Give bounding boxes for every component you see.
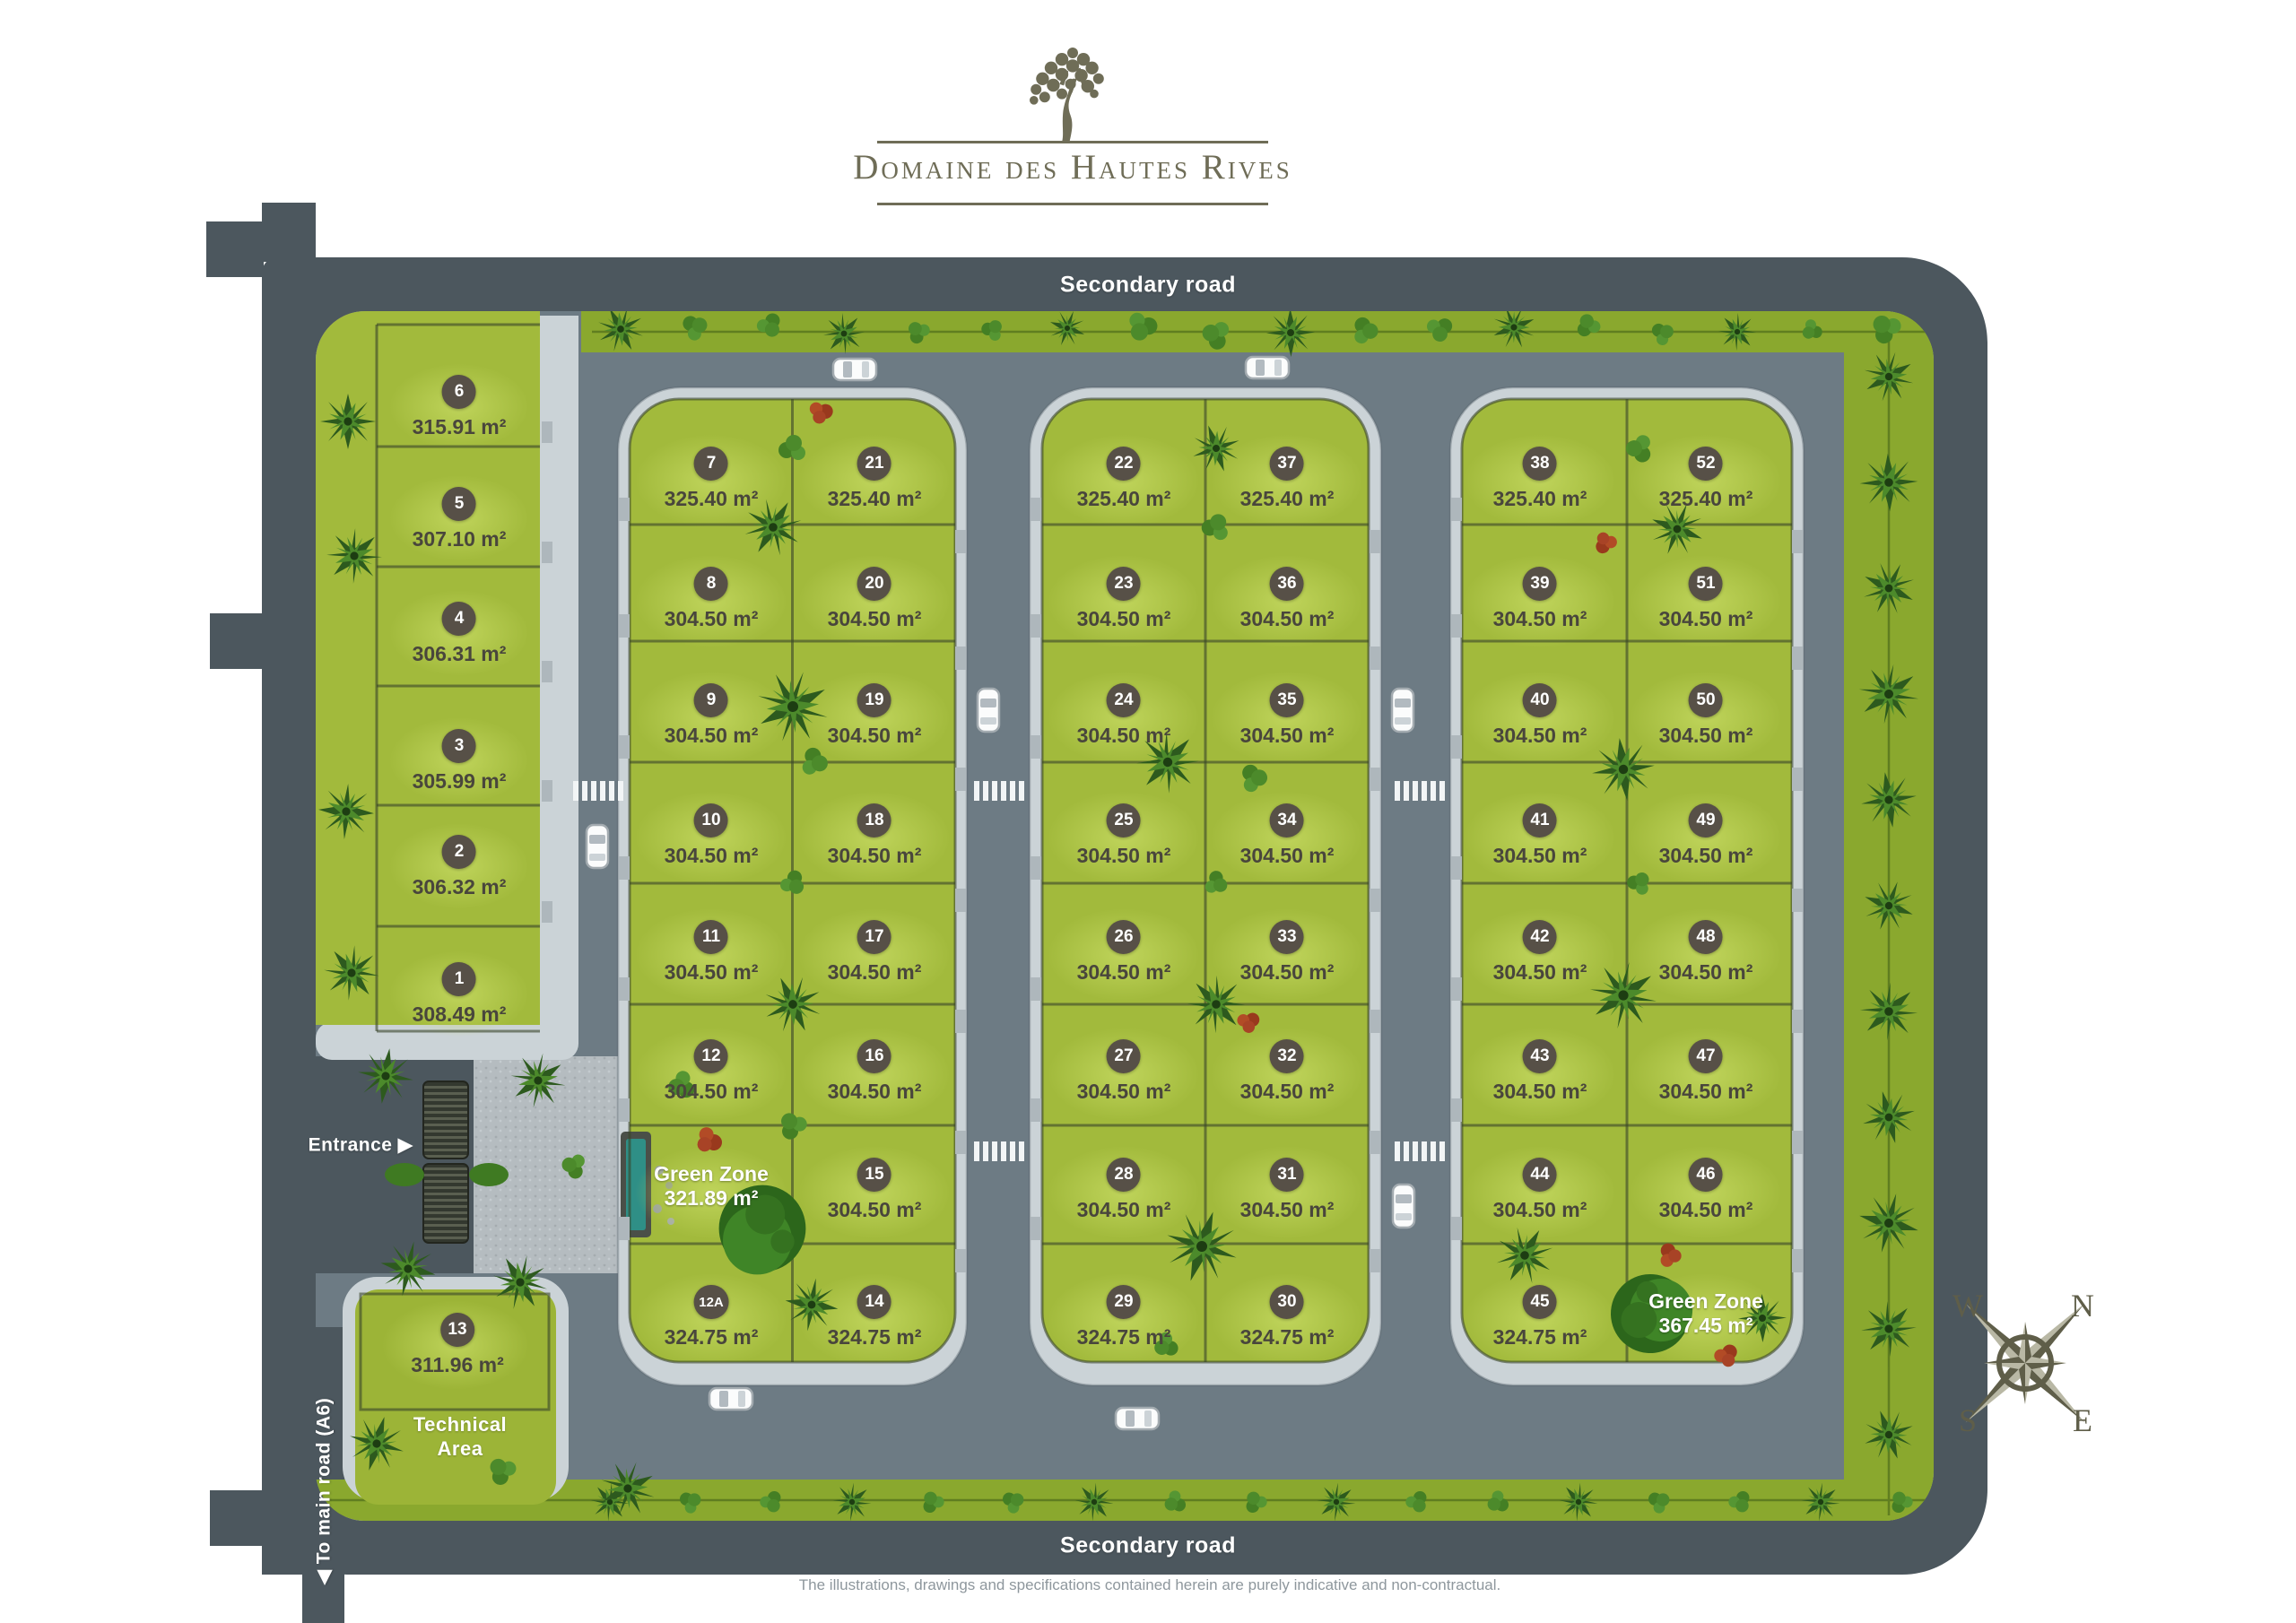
lot-12[interactable]: 12304.50 m²: [665, 1039, 759, 1104]
lot-11[interactable]: 11304.50 m²: [665, 920, 759, 985]
lot-28[interactable]: 28304.50 m²: [1077, 1158, 1171, 1222]
lot-area: 304.50 m²: [1493, 607, 1587, 631]
lot-number: 27: [1107, 1039, 1141, 1073]
lot-45[interactable]: 45324.75 m²: [1493, 1285, 1587, 1350]
lot-area: 325.40 m²: [1077, 487, 1171, 511]
lot-number: 42: [1523, 920, 1557, 954]
lot-number: 26: [1107, 920, 1141, 954]
lot-area: 325.40 m²: [1493, 487, 1587, 511]
lot-area: 304.50 m²: [828, 960, 922, 985]
lot-number: 1: [442, 962, 476, 996]
lot-21[interactable]: 21325.40 m²: [828, 447, 922, 511]
lot-area: 304.50 m²: [1493, 844, 1587, 868]
lot-number: 50: [1689, 683, 1723, 717]
lot-29[interactable]: 29324.75 m²: [1077, 1285, 1171, 1350]
lot-area: 304.50 m²: [665, 844, 759, 868]
lot-area: 304.50 m²: [1659, 724, 1753, 748]
lot-area: 304.50 m²: [828, 1198, 922, 1222]
lot-number: 12A: [693, 1285, 729, 1319]
lot-area: 304.50 m²: [1659, 960, 1753, 985]
lot-number: 23: [1107, 567, 1141, 601]
lot-15[interactable]: 15304.50 m²: [828, 1158, 922, 1222]
lot-area: 325.40 m²: [665, 487, 759, 511]
lot-area: 304.50 m²: [665, 724, 759, 748]
lot-9[interactable]: 9304.50 m²: [665, 683, 759, 748]
lot-40[interactable]: 40304.50 m²: [1493, 683, 1587, 748]
lot-24[interactable]: 24304.50 m²: [1077, 683, 1171, 748]
lot-number: 21: [857, 447, 891, 481]
lot-number: 52: [1689, 447, 1723, 481]
green-zone-area: 321.89 m²: [665, 1187, 759, 1210]
lot-12A[interactable]: 12A324.75 m²: [665, 1285, 759, 1350]
green-zone-label: Green Zone367.45 m²: [1648, 1290, 1763, 1337]
lot-area: 304.50 m²: [1493, 1198, 1587, 1222]
lot-area: 324.75 m²: [665, 1325, 759, 1350]
lot-area: 304.50 m²: [665, 960, 759, 985]
lot-18[interactable]: 18304.50 m²: [828, 803, 922, 868]
lot-area: 325.40 m²: [828, 487, 922, 511]
lot-2[interactable]: 2306.32 m²: [413, 835, 507, 899]
lot-area: 304.50 m²: [1077, 1198, 1171, 1222]
lot-number: 37: [1270, 447, 1304, 481]
lot-area: 306.31 m²: [413, 642, 507, 666]
lot-1[interactable]: 1308.49 m²: [413, 962, 507, 1027]
lot-25[interactable]: 25304.50 m²: [1077, 803, 1171, 868]
lot-area: 304.50 m²: [828, 724, 922, 748]
lot-area: 304.50 m²: [665, 607, 759, 631]
site-plan: N E S W Domaine des Hautes Rives Seconda…: [0, 0, 2296, 1623]
lot-5[interactable]: 5307.10 m²: [413, 487, 507, 551]
green-zone-title: Green Zone: [1648, 1290, 1763, 1313]
lot-number: 5: [442, 487, 476, 521]
lot-area: 304.50 m²: [1240, 1080, 1335, 1104]
lot-19[interactable]: 19304.50 m²: [828, 683, 922, 748]
lot-area: 304.50 m²: [1493, 1080, 1587, 1104]
lot-32[interactable]: 32304.50 m²: [1240, 1039, 1335, 1104]
lot-number: 2: [442, 835, 476, 869]
lot-area: 304.50 m²: [1659, 844, 1753, 868]
lot-number: 35: [1270, 683, 1304, 717]
lot-number: 36: [1270, 567, 1304, 601]
lot-number: 11: [694, 920, 728, 954]
lot-number: 43: [1523, 1039, 1557, 1073]
lot-area: 304.50 m²: [828, 844, 922, 868]
lot-number: 51: [1689, 567, 1723, 601]
lot-area: 304.50 m²: [1659, 1198, 1753, 1222]
lot-13[interactable]: 13311.96 m²: [411, 1313, 504, 1377]
lot-number: 29: [1107, 1285, 1141, 1319]
lot-46[interactable]: 46304.50 m²: [1659, 1158, 1753, 1222]
lot-26[interactable]: 26304.50 m²: [1077, 920, 1171, 985]
lot-area: 304.50 m²: [1240, 960, 1335, 985]
lot-area: 304.50 m²: [828, 1080, 922, 1104]
lot-number: 46: [1689, 1158, 1723, 1192]
green-zone-title: Green Zone: [654, 1163, 769, 1185]
lot-area: 304.50 m²: [1240, 724, 1335, 748]
lot-number: 44: [1523, 1158, 1557, 1192]
lot-area: 305.99 m²: [413, 769, 507, 794]
lot-area: 324.75 m²: [828, 1325, 922, 1350]
lot-number: 13: [440, 1313, 474, 1347]
lot-27[interactable]: 27304.50 m²: [1077, 1039, 1171, 1104]
lot-number: 41: [1523, 803, 1557, 838]
lot-number: 45: [1523, 1285, 1557, 1319]
lot-number: 30: [1270, 1285, 1304, 1319]
lot-number: 14: [857, 1285, 891, 1319]
green-zone-label: Green Zone321.89 m²: [654, 1163, 769, 1210]
lot-area: 304.50 m²: [1077, 724, 1171, 748]
lot-47[interactable]: 47304.50 m²: [1659, 1039, 1753, 1104]
lot-area: 311.96 m²: [411, 1353, 504, 1377]
lot-area: 324.75 m²: [1240, 1325, 1335, 1350]
lot-number: 40: [1523, 683, 1557, 717]
lot-area: 304.50 m²: [1493, 960, 1587, 985]
lot-number: 25: [1107, 803, 1141, 838]
lot-number: 31: [1270, 1158, 1304, 1192]
lot-number: 17: [857, 920, 891, 954]
lot-number: 28: [1107, 1158, 1141, 1192]
lot-number: 8: [694, 567, 728, 601]
lot-44[interactable]: 44304.50 m²: [1493, 1158, 1587, 1222]
lot-35[interactable]: 35304.50 m²: [1240, 683, 1335, 748]
green-zone-area: 367.45 m²: [1659, 1315, 1753, 1337]
lot-number: 24: [1107, 683, 1141, 717]
lot-number: 16: [857, 1039, 891, 1073]
lot-number: 34: [1270, 803, 1304, 838]
lot-area: 304.50 m²: [1077, 1080, 1171, 1104]
lot-area: 304.50 m²: [1659, 1080, 1753, 1104]
lot-39[interactable]: 39304.50 m²: [1493, 567, 1587, 631]
lot-area: 324.75 m²: [1077, 1325, 1171, 1350]
lot-number: 38: [1523, 447, 1557, 481]
lot-area: 304.50 m²: [1659, 607, 1753, 631]
lot-number: 48: [1689, 920, 1723, 954]
lot-number: 18: [857, 803, 891, 838]
lot-area: 304.50 m²: [1240, 607, 1335, 631]
disclaimer-text: The illustrations, drawings and specific…: [799, 1576, 1500, 1594]
lot-3[interactable]: 3305.99 m²: [413, 729, 507, 794]
lot-7[interactable]: 7325.40 m²: [665, 447, 759, 511]
lot-51[interactable]: 51304.50 m²: [1659, 567, 1753, 631]
lot-4[interactable]: 4306.31 m²: [413, 602, 507, 666]
lot-number: 33: [1270, 920, 1304, 954]
lot-8[interactable]: 8304.50 m²: [665, 567, 759, 631]
lot-number: 10: [694, 803, 728, 838]
lot-area: 307.10 m²: [413, 527, 507, 551]
lot-area: 306.32 m²: [413, 875, 507, 899]
lot-number: 19: [857, 683, 891, 717]
lot-number: 6: [442, 375, 476, 409]
lots-layer: 7325.40 m²21325.40 m²8304.50 m²20304.50 …: [0, 0, 2296, 1623]
lot-42[interactable]: 42304.50 m²: [1493, 920, 1587, 985]
lot-43[interactable]: 43304.50 m²: [1493, 1039, 1587, 1104]
lot-area: 315.91 m²: [413, 415, 507, 439]
lot-area: 304.50 m²: [1077, 960, 1171, 985]
lot-area: 308.49 m²: [413, 1002, 507, 1027]
lot-30[interactable]: 30324.75 m²: [1240, 1285, 1335, 1350]
lot-14[interactable]: 14324.75 m²: [828, 1285, 922, 1350]
lot-36[interactable]: 36304.50 m²: [1240, 567, 1335, 631]
lot-number: 7: [694, 447, 728, 481]
lot-37[interactable]: 37325.40 m²: [1240, 447, 1335, 511]
lot-area: 325.40 m²: [1240, 487, 1335, 511]
lot-number: 15: [857, 1158, 891, 1192]
lot-number: 49: [1689, 803, 1723, 838]
lot-49[interactable]: 49304.50 m²: [1659, 803, 1753, 868]
lot-number: 47: [1689, 1039, 1723, 1073]
lot-23[interactable]: 23304.50 m²: [1077, 567, 1171, 631]
lot-area: 304.50 m²: [1493, 724, 1587, 748]
lot-31[interactable]: 31304.50 m²: [1240, 1158, 1335, 1222]
lot-area: 304.50 m²: [1077, 607, 1171, 631]
lot-number: 32: [1270, 1039, 1304, 1073]
lot-area: 304.50 m²: [828, 607, 922, 631]
lot-area: 304.50 m²: [1240, 1198, 1335, 1222]
lot-52[interactable]: 52325.40 m²: [1659, 447, 1753, 511]
lot-number: 22: [1107, 447, 1141, 481]
lot-number: 39: [1523, 567, 1557, 601]
lot-34[interactable]: 34304.50 m²: [1240, 803, 1335, 868]
lot-area: 304.50 m²: [665, 1080, 759, 1104]
lot-number: 4: [442, 602, 476, 636]
lot-22[interactable]: 22325.40 m²: [1077, 447, 1171, 511]
lot-number: 12: [694, 1039, 728, 1073]
lot-10[interactable]: 10304.50 m²: [665, 803, 759, 868]
lot-number: 20: [857, 567, 891, 601]
lot-33[interactable]: 33304.50 m²: [1240, 920, 1335, 985]
lot-41[interactable]: 41304.50 m²: [1493, 803, 1587, 868]
lot-16[interactable]: 16304.50 m²: [828, 1039, 922, 1104]
lot-17[interactable]: 17304.50 m²: [828, 920, 922, 985]
lot-6[interactable]: 6315.91 m²: [413, 375, 507, 439]
lot-48[interactable]: 48304.50 m²: [1659, 920, 1753, 985]
lot-area: 304.50 m²: [1077, 844, 1171, 868]
lot-number: 9: [694, 683, 728, 717]
lot-area: 304.50 m²: [1240, 844, 1335, 868]
lot-20[interactable]: 20304.50 m²: [828, 567, 922, 631]
lot-area: 325.40 m²: [1659, 487, 1753, 511]
lot-number: 3: [442, 729, 476, 763]
lot-38[interactable]: 38325.40 m²: [1493, 447, 1587, 511]
lot-50[interactable]: 50304.50 m²: [1659, 683, 1753, 748]
lot-area: 324.75 m²: [1493, 1325, 1587, 1350]
